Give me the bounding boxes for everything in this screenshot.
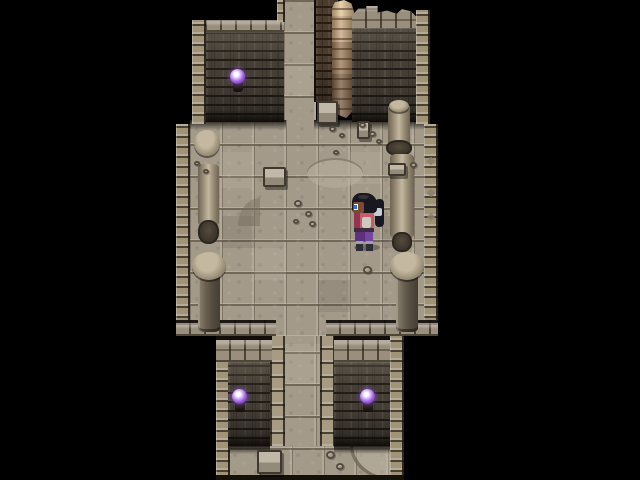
rubble-pebble — [369, 131, 376, 137]
bottom-wall-edge — [216, 475, 404, 480]
fallen-pillar-west-broken-end — [198, 220, 219, 244]
boot-right — [366, 244, 373, 251]
stone-slab — [257, 450, 282, 474]
waist-pouch — [362, 217, 371, 228]
hair-highlight — [358, 195, 369, 199]
broken-pillar-stump-west — [194, 130, 220, 156]
eye — [354, 205, 357, 209]
glowing-orb — [360, 389, 375, 404]
rubble-pebble — [309, 221, 316, 227]
wall-base-shade — [334, 434, 390, 446]
rubble-pebble — [333, 150, 339, 155]
corridor-edge-trim — [277, 0, 285, 22]
boot-left — [356, 244, 363, 251]
south-ledge-east — [326, 320, 438, 336]
north-corridor-floor — [284, 0, 316, 128]
northeast-wall-trim — [416, 10, 430, 124]
rubble-pebble — [305, 211, 312, 217]
stone-slab — [263, 167, 286, 187]
stone-slab — [317, 101, 338, 124]
worn-floor-circle — [307, 158, 363, 188]
glowing-orb — [230, 69, 245, 84]
southwest-wall-cap — [216, 336, 272, 362]
skirt-highlight — [365, 232, 373, 241]
south-ledge-west — [176, 320, 276, 336]
rubble-pebble — [203, 169, 209, 174]
west-edge-trim — [176, 124, 190, 336]
rubble-pebble — [293, 219, 299, 224]
southeast-wall-trim — [390, 336, 404, 480]
player-character[interactable] — [348, 192, 390, 252]
fallen-pillar-west — [198, 164, 219, 226]
wall-base-shade — [228, 434, 270, 446]
wall-shadow — [334, 446, 390, 454]
rubble-pebble — [329, 126, 336, 132]
rubble-pebble — [326, 451, 335, 459]
standing-pillar-east-cap — [390, 252, 424, 280]
rubble-pebble — [336, 463, 344, 470]
standing-pillar-west-cap — [192, 252, 226, 280]
fallen-pillar-east-broken-end — [392, 232, 412, 252]
rubble-pebble — [194, 161, 200, 166]
northwest-wall-trim — [192, 20, 206, 124]
rubble-pebble — [294, 200, 302, 207]
south-corridor-east-edge — [320, 336, 335, 446]
game-viewport — [0, 0, 640, 480]
northwest-brick-wall — [206, 32, 284, 122]
wall-base-shade — [206, 110, 284, 122]
rubble-pebble — [359, 122, 366, 128]
rubble-pebble — [363, 266, 372, 274]
shirt-front-shade — [354, 213, 360, 228]
glowing-orb — [232, 389, 247, 404]
stone-slab — [388, 163, 406, 176]
south-corridor-floor — [284, 336, 320, 448]
rubble-pebble — [410, 162, 417, 168]
rubble-pebble — [376, 139, 382, 144]
broken-pillar-stump-east-top — [389, 100, 409, 112]
rubble-pebble — [339, 133, 345, 138]
south-corridor-west-edge — [270, 336, 285, 446]
